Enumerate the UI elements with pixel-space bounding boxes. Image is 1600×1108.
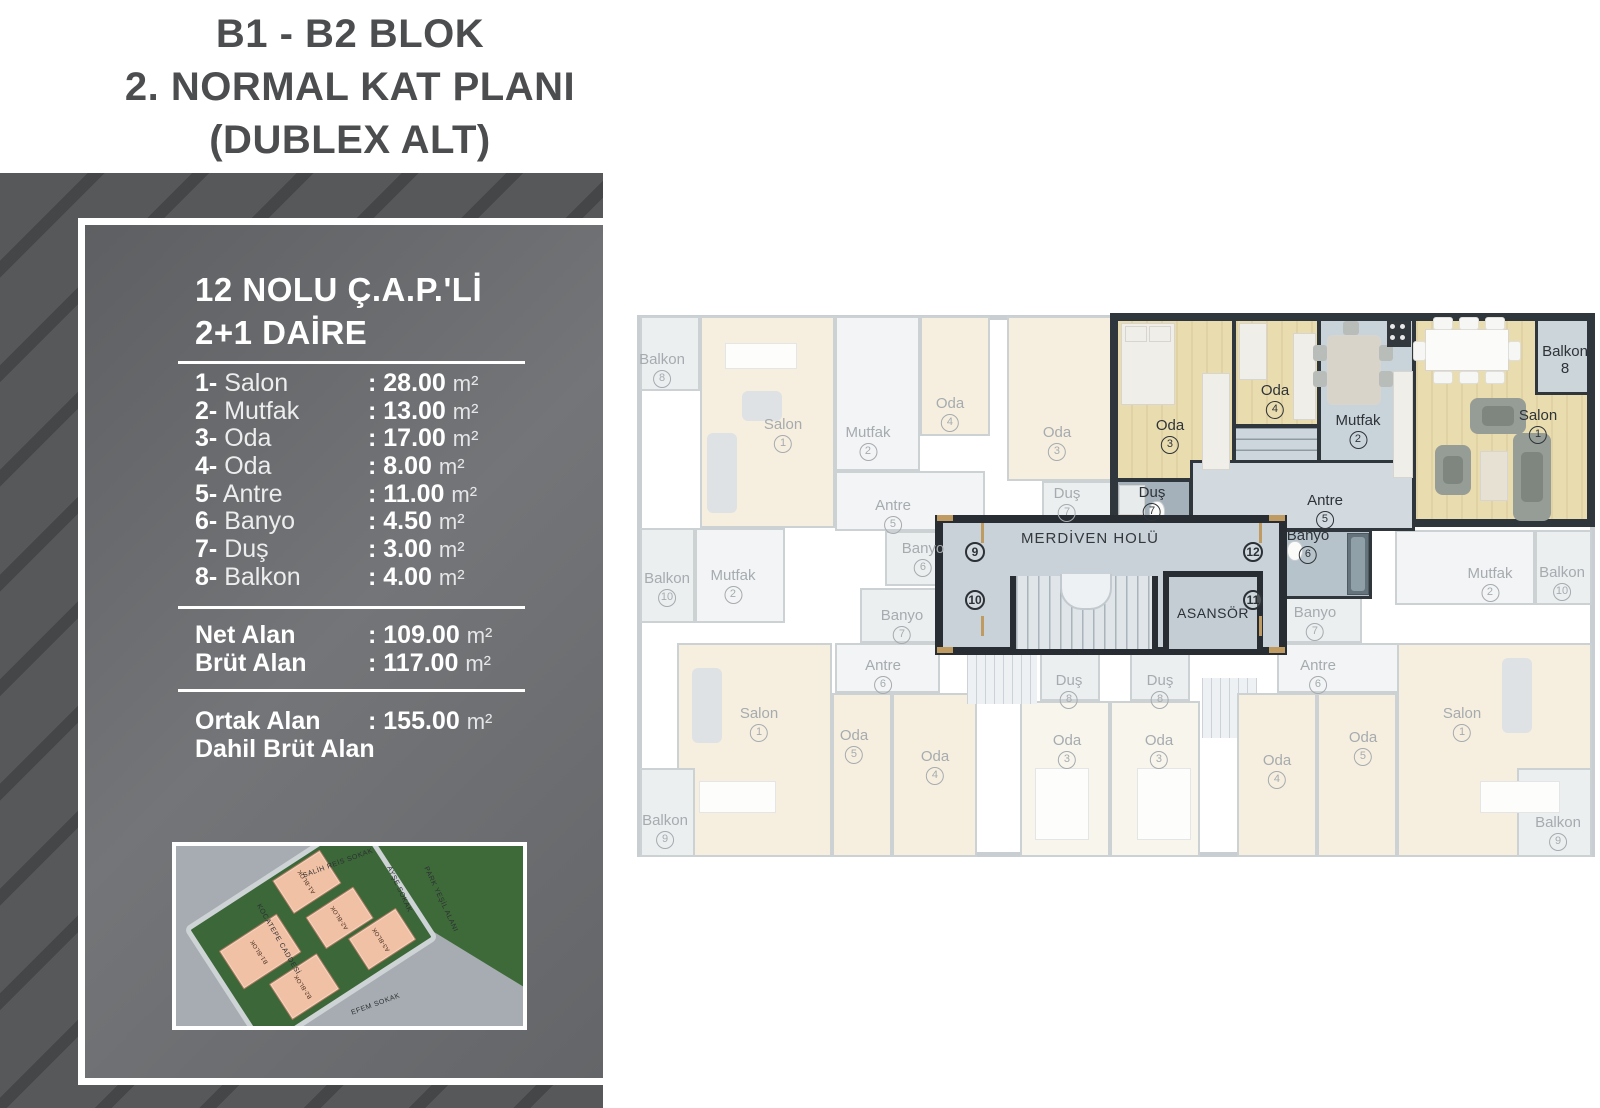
faded-bed [1137,768,1191,840]
room-label-banyo-6: Banyo6 [1287,527,1330,564]
chair [1485,371,1505,384]
room-label-oda-4: Oda4 [936,395,964,432]
room-area-row: 4- Oda: 8.00 m² [195,452,535,480]
room-label-salon-1: Salon1 [740,705,778,742]
room-label-oda-4: Oda4 [1263,752,1291,789]
room-area-row: 3- Oda: 17.00 m² [195,424,535,452]
faded-dining-table [699,781,776,813]
divider [178,689,525,692]
faded-dining-table [1480,781,1560,813]
room-label-salon-1: Salon1 [1443,705,1481,742]
room-area-row: 8- Balkon: 4.00 m² [195,563,535,591]
chair [1343,321,1359,335]
chair [1485,317,1505,330]
total-area-row: Brüt Alan: 117.00 m² [195,649,535,677]
bed [1239,323,1267,380]
apartment-heading-line-2: 2+1 DAİRE [195,311,482,354]
page-title: B1 - B2 BLOK 2. NORMAL KAT PLANI (DUBLEX… [40,8,660,167]
bathtub [1347,533,1369,595]
chair [1433,371,1453,384]
kitchen-counter [1393,371,1413,478]
chair [1413,341,1426,361]
apartment-heading: 12 NOLU Ç.A.P.'Lİ 2+1 DAİRE [195,268,482,354]
faded-room-mutfak-2 [1395,530,1535,605]
pillow [1149,326,1171,342]
room-label-balkon-8: Balkon8 [639,351,685,388]
room-label-oda-3: Oda3 [1145,732,1173,769]
floor-plan: ASANSÖR MERDİVEN HOLÜ 9101211 Oda3Oda4Mu… [637,313,1595,857]
outer-wall-right [1587,313,1595,525]
pillow [1125,326,1147,342]
main-stairs [1010,576,1158,655]
core-number-12: 12 [1243,542,1263,562]
apartment-heading-line-1: 12 NOLU Ç.A.P.'Lİ [195,268,482,311]
room-label-banyo-7: Banyo7 [1294,604,1337,641]
room-label-duş-8: Duş8 [1056,672,1083,709]
door-sill [937,647,953,653]
core-number-11: 11 [1243,590,1263,610]
room-label-duş-7: Duş7 [1139,484,1166,521]
core-number-10: 10 [965,590,985,610]
room-label-mutfak-2: Mutfak2 [1467,565,1512,602]
room-label-mutfak-2: Mutfak2 [710,567,755,604]
chair [1313,345,1327,361]
room-label-oda-3: Oda3 [1156,417,1184,454]
coffee-table [1480,451,1508,501]
title-line-3: (DUBLEX ALT) [40,114,660,167]
room-label-oda-3: Oda3 [1053,732,1081,769]
outer-wall-top [1110,313,1595,321]
stair-hall-label: MERDİVEN HOLÜ [1021,530,1159,547]
room-area-list: 1- Salon: 28.00 m²2- Mutfak: 13.00 m²3- … [195,369,535,591]
room-label-antre-6: Antre6 [1300,657,1336,694]
kitchen-table [1327,335,1381,405]
room-label-banyo-7: Banyo7 [881,607,924,644]
room-label-mutfak-2: Mutfak2 [845,424,890,461]
street-label-efem-sokak: EFEM SOKAK [350,992,401,1016]
wardrobe [1202,373,1230,470]
faded-sofa [1502,658,1532,733]
total-area-row: Net Alan: 109.00 m² [195,621,535,649]
stove-icon [1387,321,1411,347]
stair-landing [1060,574,1112,610]
title-line-2: 2. NORMAL KAT PLANI [40,61,660,114]
common-area-label-1: Ortak Alan : 155.00 m² [195,707,375,735]
common-area-label-2: Dahil Brüt Alan [195,735,375,763]
door-mark [1259,523,1262,543]
divider [178,606,525,609]
room-label-antre-6: Antre6 [865,657,901,694]
faded-sofa [707,433,737,513]
chair [1379,371,1393,387]
room-label-banyo-6: Banyo6 [902,540,945,577]
door-mark [1259,616,1262,636]
room-label-oda-5: Oda5 [1349,729,1377,766]
room-label-oda-3: Oda3 [1043,424,1071,461]
title-line-1: B1 - B2 BLOK [40,8,660,61]
room-label-balkon-10: Balkon10 [1539,564,1585,601]
room-area-row: 7- Duş: 3.00 m² [195,535,535,563]
chair [1433,317,1453,330]
room-label-balkon-8: Balkon8 [1542,343,1588,378]
room-area-row: 1- Salon: 28.00 m² [195,369,535,397]
total-area-list: Net Alan: 109.00 m²Brüt Alan: 117.00 m² [195,621,535,677]
chair [1459,371,1479,384]
elevator-label: ASANSÖR [1177,605,1249,621]
common-area-value: : 155.00 m² [368,707,492,736]
door-mark [981,523,984,543]
armchair [1435,445,1471,495]
site-plan-map: B1-BLOKA1-BLOKA2-BLOKA3-BLOKB2-BLOK SALİ… [172,842,527,1030]
faded-dining-table [725,343,797,369]
common-area-block: Ortak Alan : 155.00 m² Dahil Brüt Alan [195,707,375,763]
room-area-row: 6- Banyo: 4.50 m² [195,507,535,535]
room-label-duş-7: Duş7 [1054,485,1081,522]
room-label-salon-1: Salon1 [764,416,802,453]
elevator: ASANSÖR [1163,571,1263,655]
armchair [1470,398,1526,434]
chair [1459,317,1479,330]
room-label-mutfak-2: Mutfak2 [1335,412,1380,449]
divider [178,361,525,364]
room-area-row: 5- Antre: 11.00 m² [195,480,535,508]
door-sill [1269,647,1285,653]
room-label-balkon-10: Balkon10 [644,570,690,607]
door-sill [937,515,953,521]
room-label-salon-1: Salon1 [1519,407,1557,444]
room-area-row: 2- Mutfak: 13.00 m² [195,397,535,425]
outer-wall-bottom [1413,519,1595,527]
chair [1379,345,1393,361]
door-mark [981,616,984,636]
core-number-9: 9 [965,542,985,562]
room-label-oda-4: Oda4 [1261,382,1289,419]
room-label-balkon-9: Balkon9 [642,812,688,849]
sofa [1513,433,1551,521]
room-label-balkon-9: Balkon9 [1535,814,1581,851]
chair [1508,341,1521,361]
door-sill [1269,515,1285,521]
faded-stairs [967,649,1037,704]
room-label-oda-5: Oda5 [840,727,868,764]
faded-sofa [692,668,722,743]
faded-room-oda-5 [832,693,892,857]
chair [1313,371,1327,387]
dining-table [1425,329,1509,371]
room-label-antre-5: Antre5 [1307,492,1343,529]
faded-bed [1035,768,1089,840]
room-label-antre-5: Antre5 [875,497,911,534]
outer-wall-left [1110,313,1118,535]
room-label-duş-8: Duş8 [1147,672,1174,709]
room-label-oda-4: Oda4 [921,748,949,785]
faded-room-oda-5 [1317,693,1397,857]
